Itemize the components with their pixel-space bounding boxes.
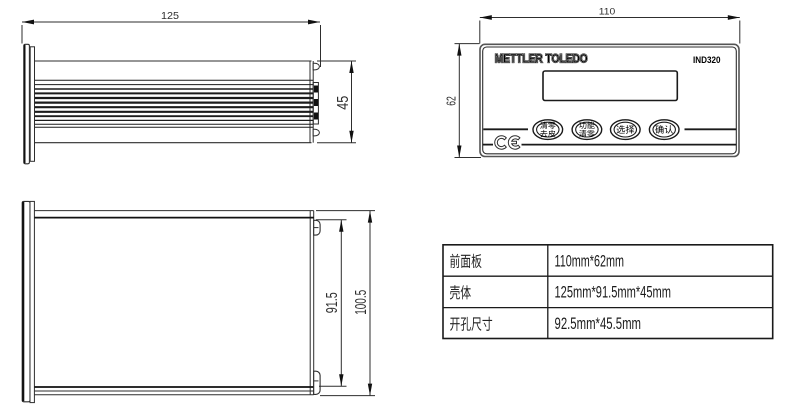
- svg-text:45: 45: [335, 96, 352, 110]
- svg-text:125mm*91.5mm*45mm: 125mm*91.5mm*45mm: [555, 283, 672, 302]
- svg-text:92.5mm*45.5mm: 92.5mm*45.5mm: [555, 314, 642, 333]
- svg-text:110mm*62mm: 110mm*62mm: [555, 251, 625, 270]
- svg-text:100.5: 100.5: [353, 290, 370, 315]
- svg-text:125: 125: [161, 10, 179, 22]
- svg-text:110: 110: [599, 7, 616, 18]
- svg-text:62: 62: [445, 96, 459, 106]
- svg-text:METTLER TOLEDO: METTLER TOLEDO: [495, 54, 588, 66]
- svg-text:91.5: 91.5: [324, 292, 341, 313]
- svg-text:IND320: IND320: [693, 55, 721, 65]
